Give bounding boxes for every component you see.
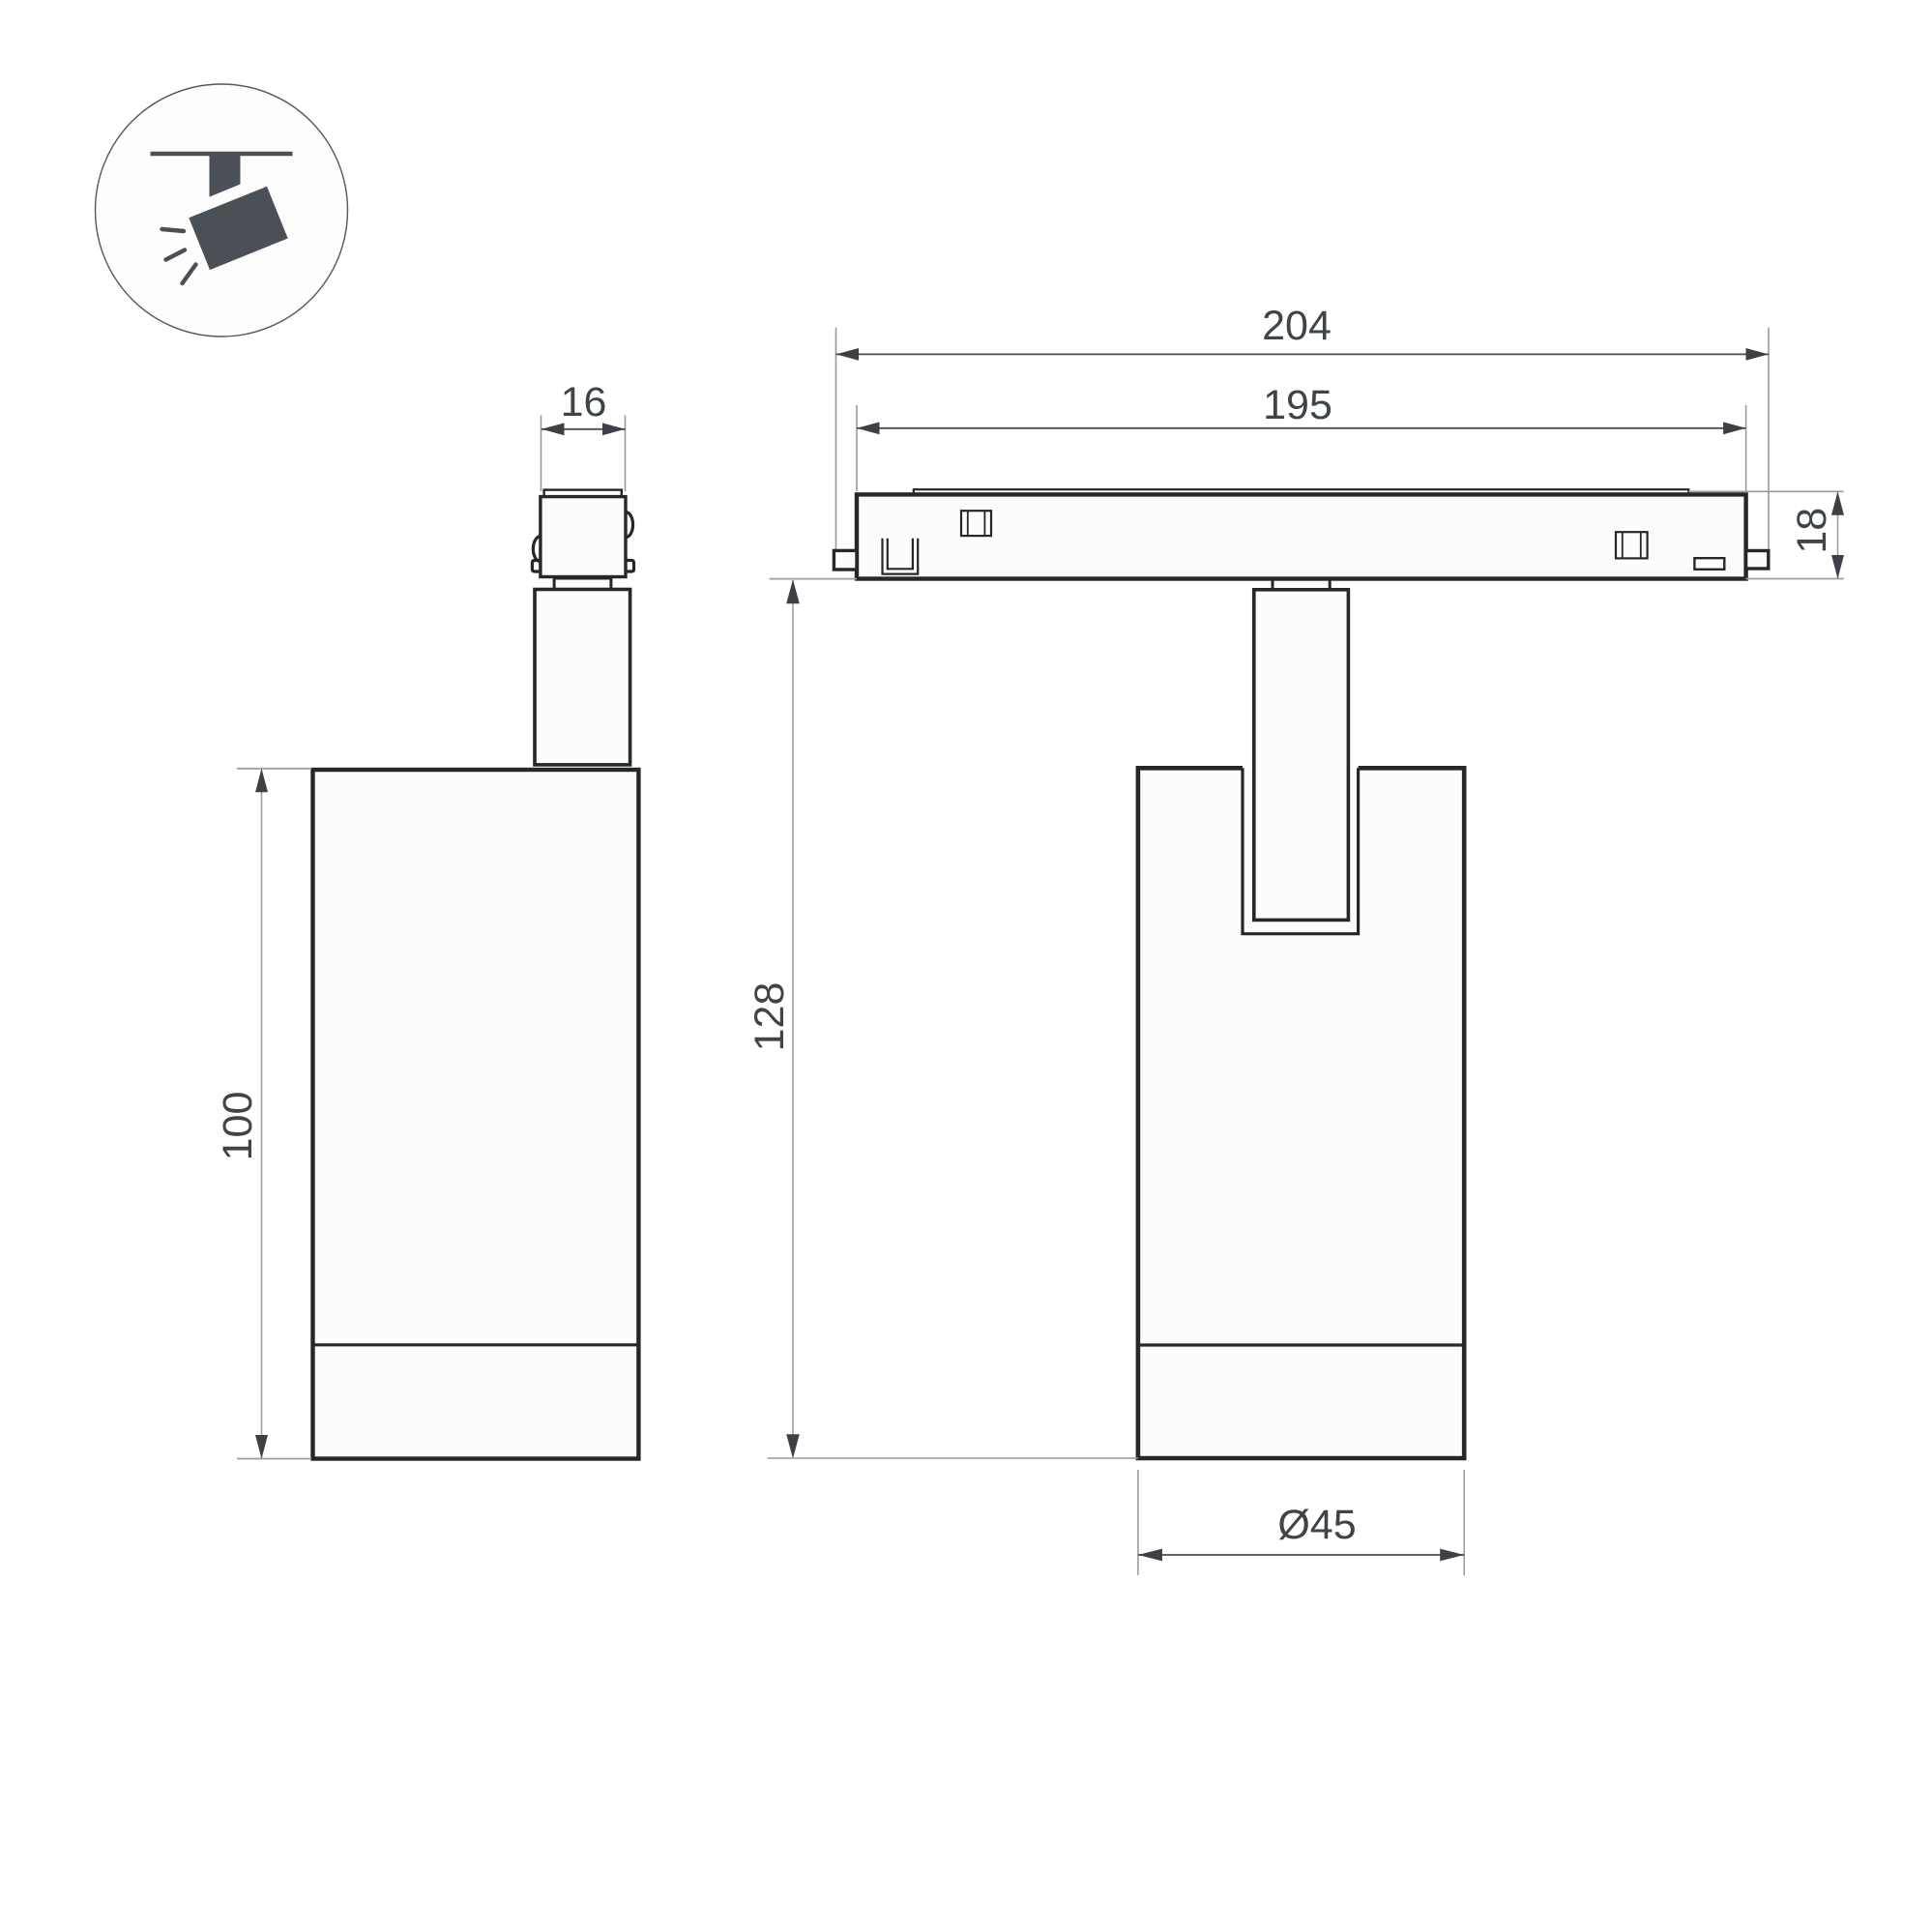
svg-text:100: 100 bbox=[215, 1092, 261, 1161]
svg-text:Ø45: Ø45 bbox=[1277, 1502, 1356, 1548]
svg-text:195: 195 bbox=[1263, 382, 1332, 428]
svg-text:128: 128 bbox=[746, 982, 793, 1052]
svg-text:18: 18 bbox=[1789, 508, 1835, 554]
svg-text:204: 204 bbox=[1262, 303, 1332, 349]
svg-text:16: 16 bbox=[561, 379, 607, 425]
